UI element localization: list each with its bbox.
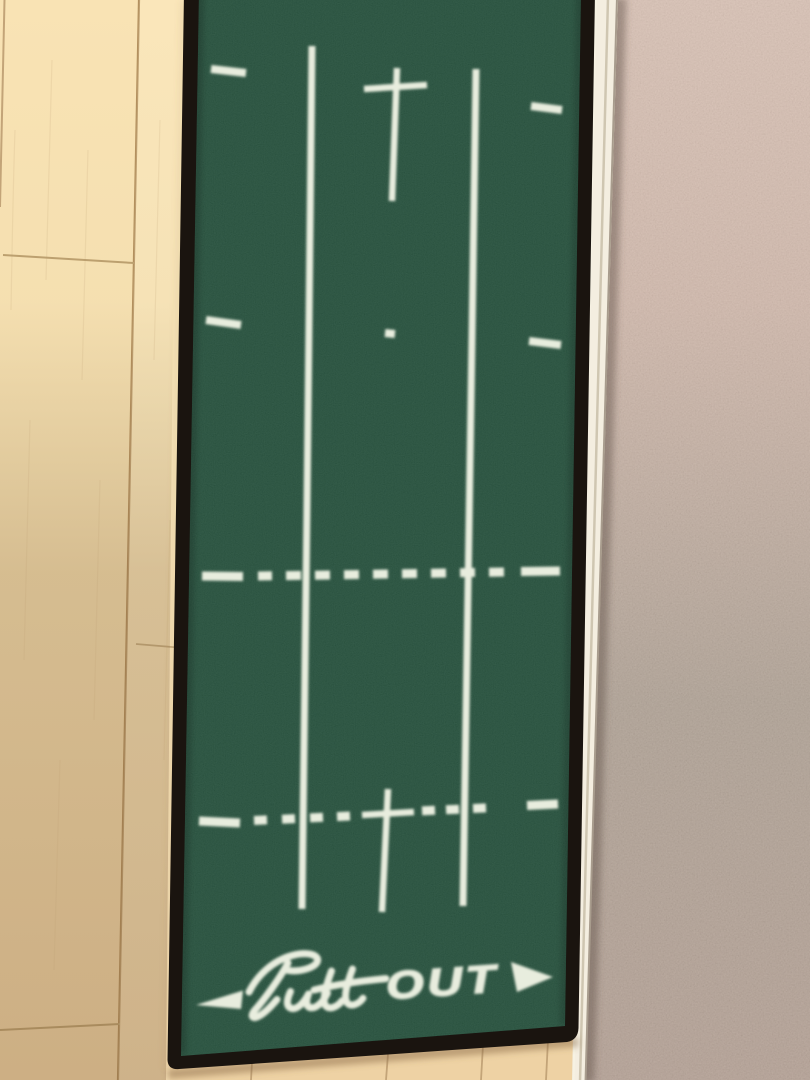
svg-text:OUT: OUT	[385, 958, 501, 1008]
